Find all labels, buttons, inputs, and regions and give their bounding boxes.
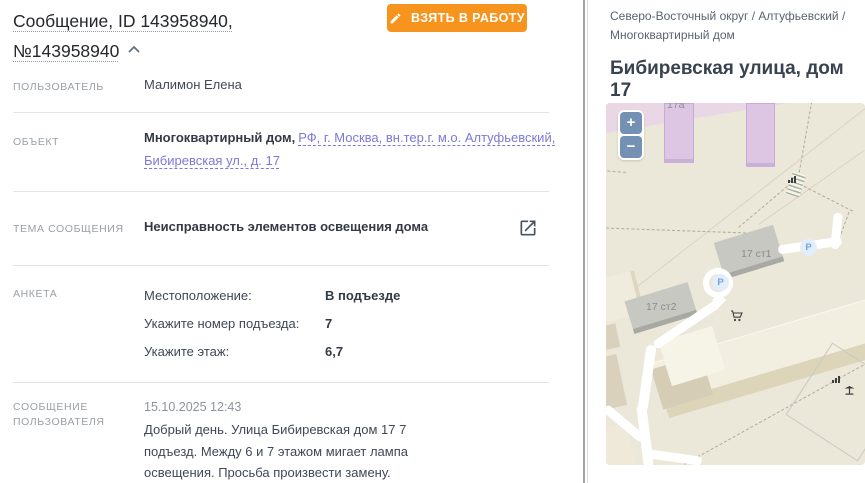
map-building-label: 17а: [667, 103, 685, 111]
map-dashed-path: [606, 170, 626, 173]
user-label: ПОЛЬЗОВАТЕЛЬ: [13, 80, 135, 95]
divider: [13, 112, 549, 113]
survey-answer: В подъезде: [325, 288, 400, 303]
topic-value: Неисправность элементов освещения дома: [144, 219, 428, 234]
message-text: Добрый день. Улица Бибиревская дом 17 7 …: [144, 419, 442, 483]
divider: [13, 382, 549, 383]
object-label: ОБЪЕКТ: [13, 135, 135, 150]
map-footpath: [648, 449, 703, 465]
map-building: [606, 323, 620, 350]
steps-icon: [788, 165, 797, 183]
object-value: Многоквартирный дом,РФ, г. Москва, вн.те…: [144, 126, 556, 172]
parking-icon: P: [800, 239, 817, 256]
topic-label: ТЕМА СООБЩЕНИЯ: [13, 222, 135, 237]
divider: [13, 265, 549, 266]
survey-label: АНКЕТА: [13, 287, 135, 302]
survey-row: Укажите номер подъезда:7: [144, 310, 400, 338]
panel-scrollbar[interactable]: [583, 0, 585, 483]
survey-answer: 7: [325, 316, 332, 331]
chevron-up-icon[interactable]: [126, 37, 142, 67]
map-dashed-path: [606, 228, 746, 234]
user-value: Малимон Елена: [144, 77, 242, 92]
survey-question: Укажите номер подъезда:: [144, 310, 325, 338]
map-road: [606, 108, 865, 312]
survey-answer: 6,7: [325, 344, 343, 359]
shop-cart-icon: [730, 309, 743, 327]
map-building: [746, 103, 775, 167]
page-title: Сообщение, ID 143958940, №143958940: [13, 6, 323, 67]
map-building-label: 17 ст2: [646, 301, 677, 313]
message-label: СООБЩЕНИЕ ПОЛЬЗОВАТЕЛЯ: [13, 400, 135, 430]
zoom-out-button[interactable]: −: [620, 136, 642, 158]
survey-block: Местоположение:В подъезде Укажите номер …: [144, 282, 400, 366]
survey-question: Местоположение:: [144, 282, 325, 310]
message-timestamp: 15.10.2025 12:43: [144, 400, 241, 414]
map-building: [606, 354, 627, 410]
parking-icon: P: [712, 274, 729, 291]
map-zoom-control: + −: [618, 110, 644, 160]
map-dashed-path: [799, 103, 812, 173]
open-in-new-icon[interactable]: [518, 218, 538, 238]
survey-row: Местоположение:В подъезде: [144, 282, 400, 310]
message-title-link[interactable]: Сообщение, ID 143958940, №143958940: [13, 11, 233, 61]
take-to-work-button[interactable]: ВЗЯТЬ В РАБОТУ: [387, 4, 527, 32]
map-dashed-path: [799, 183, 853, 211]
panel-divider: [587, 0, 588, 483]
map-address-title: Бибиревская улица, дом 17: [610, 58, 865, 102]
ticket-page: Сообщение, ID 143958940, №143958940 ВЗЯТ…: [0, 0, 865, 483]
object-type: Многоквартирный дом,: [144, 130, 295, 145]
pencil-icon: [389, 12, 402, 25]
breadcrumb[interactable]: Северо-Восточный округ / Алтуфьевский / …: [610, 7, 865, 45]
divider: [13, 191, 549, 192]
take-to-work-label: ВЗЯТЬ В РАБОТУ: [411, 11, 525, 25]
survey-question: Укажите этаж:: [144, 338, 325, 366]
map-building-17a: [664, 103, 694, 163]
survey-row: Укажите этаж:6,7: [144, 338, 400, 366]
zoom-in-button[interactable]: +: [620, 112, 642, 134]
map-building-label: 17 ст1: [741, 248, 772, 260]
map[interactable]: 17а 17 ст1 17 ст2 P: [606, 103, 865, 465]
